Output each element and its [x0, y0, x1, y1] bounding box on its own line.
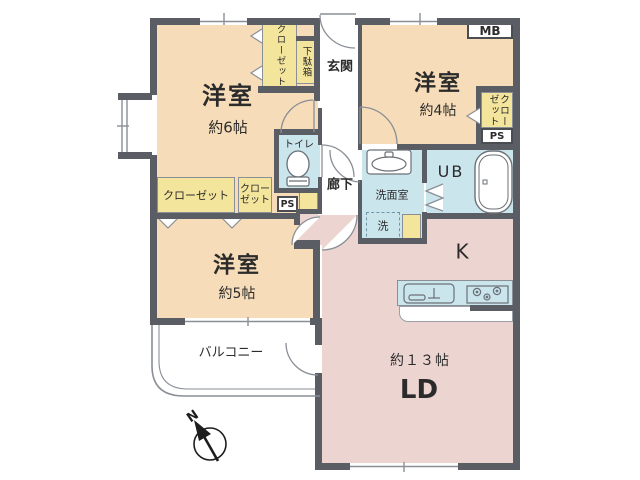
balcony-door-arc — [286, 343, 318, 375]
toilet-icon — [287, 151, 309, 186]
compass-north-label: N — [184, 407, 202, 426]
plan-overlay: N — [0, 0, 640, 480]
living-dining-name: LD — [400, 376, 438, 406]
stove-icon — [467, 286, 508, 303]
washroom-name: 洗面室 — [376, 190, 409, 203]
bath-folding-door — [426, 184, 443, 211]
bedroom5-name: 洋室 — [213, 253, 261, 278]
bedroom5-size: 約5帖 — [219, 286, 256, 302]
unit-bath-name: UB — [438, 163, 465, 181]
bedroom6-door-arc — [281, 100, 313, 133]
floor-plan: クローゼット 下駄箱 クローゼット クロー ゼット クローゼット MB PS P… — [0, 0, 640, 480]
bedroom4-door-arc — [360, 107, 397, 144]
entrance-door-arc — [320, 15, 355, 48]
living-dining-size: 約１３帖 — [390, 353, 450, 369]
bedroom4-name: 洋室 — [414, 71, 462, 96]
washing-machine-label: 洗 — [378, 221, 389, 234]
bedroom6-name: 洋室 — [202, 83, 254, 111]
hallway-name: 廊下 — [327, 179, 353, 194]
kitchen-sink-icon — [404, 284, 454, 303]
entrance-name: 玄関 — [327, 61, 353, 76]
closet-chevrons — [159, 29, 480, 228]
bathtub-icon — [475, 151, 512, 213]
hallway-ld-door-arc — [322, 215, 357, 250]
kitchen-name: K — [455, 241, 470, 264]
balcony-name: バルコニー — [199, 347, 264, 362]
toilet-name: トイレ — [284, 139, 314, 151]
bedroom6-size: 約6帖 — [208, 119, 248, 136]
compass: N — [184, 407, 226, 461]
bedroom5-door-arc — [292, 217, 320, 245]
washroom-sink-icon — [367, 150, 411, 174]
bedroom4-size: 約4帖 — [420, 103, 457, 119]
